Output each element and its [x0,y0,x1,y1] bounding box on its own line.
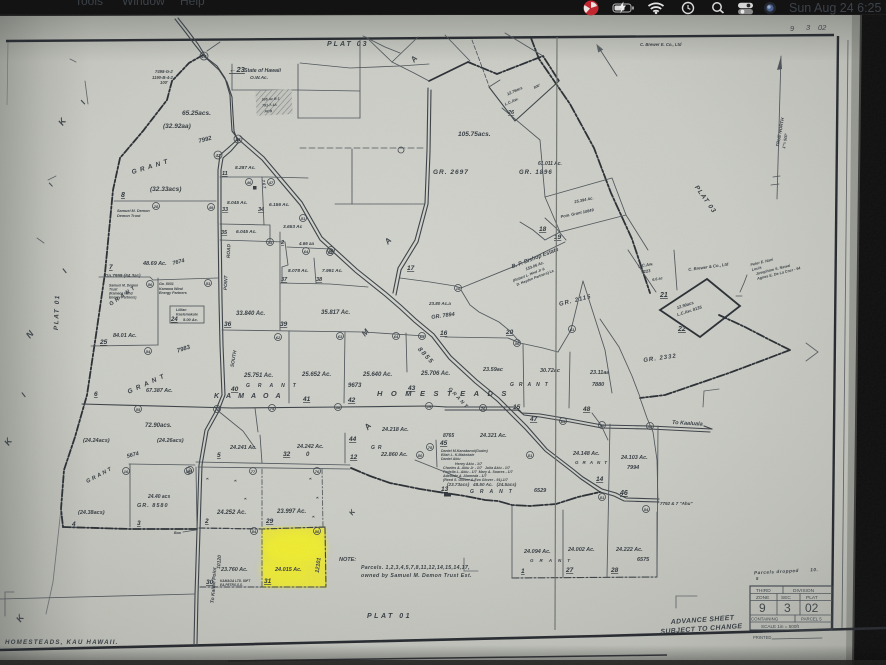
svg-text:Window: Window [122,0,165,8]
svg-text:Help: Help [180,0,205,8]
svg-text:Tools: Tools [75,0,103,8]
svg-text:Sun Aug 24 6:25 P: Sun Aug 24 6:25 P [789,1,886,15]
